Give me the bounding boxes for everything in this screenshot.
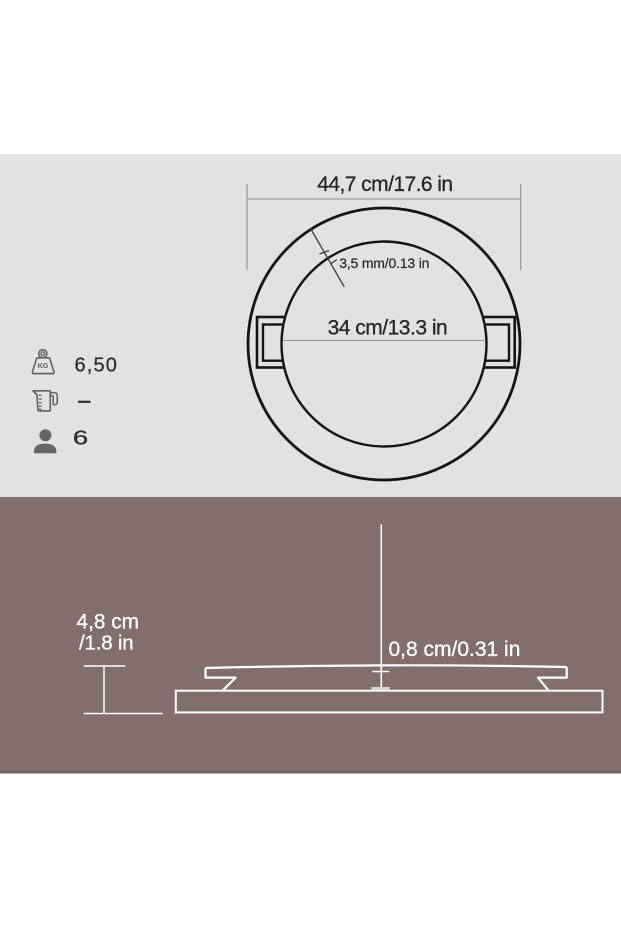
- svg-text:6,50: 6,50: [75, 354, 119, 376]
- svg-text:3,5 mm/0.13 in: 3,5 mm/0.13 in: [339, 255, 429, 271]
- svg-text:34 cm/13.3 in: 34 cm/13.3 in: [328, 317, 448, 340]
- svg-text:0,8 cm/0.31 in: 0,8 cm/0.31 in: [389, 638, 521, 661]
- svg-text:4,8 cm: 4,8 cm: [77, 610, 139, 633]
- svg-text:44,7 cm/17.6 in: 44,7 cm/17.6 in: [317, 173, 452, 196]
- svg-text:/1.8 in: /1.8 in: [79, 632, 133, 655]
- svg-text:6: 6: [73, 426, 88, 449]
- svg-text:KG: KG: [38, 361, 49, 370]
